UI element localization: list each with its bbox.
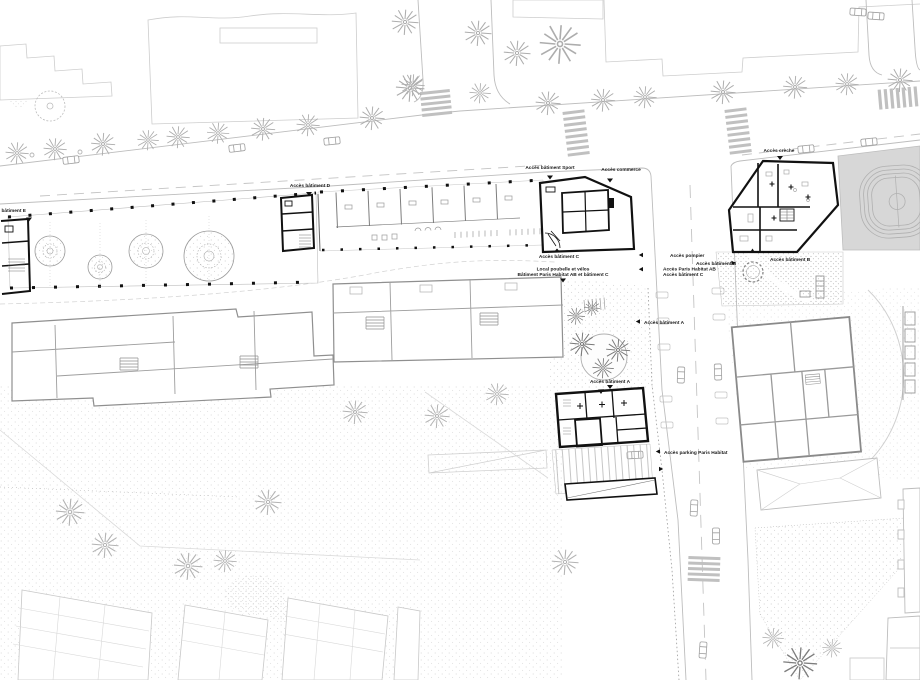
arrow-down-icon [777, 156, 783, 160]
label-acces-batiment-d: Accès bâtiment D [290, 183, 331, 189]
existing-building-center [333, 277, 563, 362]
label-acces-batiment-a-street: Accès bâtiment A [644, 320, 685, 326]
label-acces-commerce: Accès commerce [601, 167, 641, 173]
label-acces-batiment-c-right: Accès bâtiment C [663, 272, 704, 278]
building-c [540, 177, 634, 252]
parking-ramp [552, 444, 657, 500]
label-acces-batiment-b-street: Accès bâtiment B [696, 261, 737, 267]
site-plan-svg: Accès bâtiment E Accès bâtiment D Accès … [0, 0, 920, 680]
hall-east-core [281, 195, 314, 251]
arrow-down-icon [607, 179, 613, 183]
label-acces-batiment-e: Accès bâtiment E [0, 208, 27, 214]
street-trees [6, 10, 913, 164]
arrow-right-icon [659, 467, 663, 471]
label-acces-batiment-c-top: Accès bâtiment C [539, 254, 580, 260]
school-building [732, 317, 861, 462]
building-sport [318, 180, 543, 251]
label-acces-batiment-sport: Accès bâtiment Sport [525, 165, 575, 171]
context-buildings-top [0, 0, 920, 124]
building-strip-de [1, 193, 318, 294]
building-a [556, 388, 648, 447]
building-creche [729, 161, 838, 253]
label-acces-creche: Accès crèche [764, 148, 795, 154]
arrow-left-icon [639, 267, 643, 271]
sports-track [838, 146, 920, 250]
arrow-down-icon [547, 176, 553, 180]
label-acces-pompier: Accès pompier [670, 253, 705, 259]
arrow-left-icon [656, 449, 660, 453]
label-local-poubelle-line1: Local poubelle et vélos [537, 267, 590, 273]
label-acces-paris-habitat-ab: Accès Paris Habitat AB [663, 267, 716, 273]
arrow-left-icon [639, 253, 643, 257]
site-plan: Accès bâtiment E Accès bâtiment D Accès … [0, 0, 920, 680]
label-acces-batiment-b-court: Accès bâtiment B [770, 257, 811, 263]
label-local-poubelle-line2: Bâtiment Paris Habitat AB et bâtiment C [518, 272, 610, 278]
label-acces-batiment-a-court: Accès bâtiment A [590, 379, 631, 385]
label-acces-parking: Accès parking Paris Habitat [664, 450, 728, 456]
